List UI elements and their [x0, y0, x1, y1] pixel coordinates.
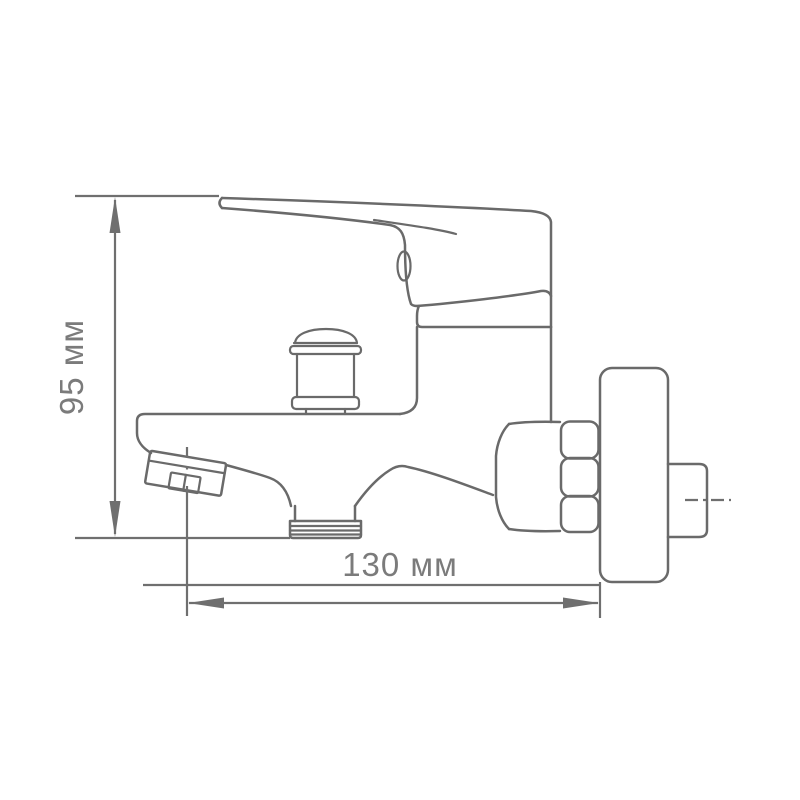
cap-outline	[417, 306, 551, 327]
hex-nut	[561, 422, 599, 533]
aerator-housing	[145, 451, 226, 496]
handle-bottom-seam	[417, 291, 551, 306]
height-dimension-label: 95 мм	[52, 247, 92, 487]
shower-hose-outlet	[290, 506, 361, 538]
aerator	[145, 451, 227, 497]
diverter-dome	[295, 329, 357, 343]
reach-dimension-label: 130 мм	[300, 547, 500, 583]
spout	[137, 414, 400, 506]
diverter-knob	[290, 329, 361, 414]
connection-nut	[496, 422, 560, 531]
handle-decorative-seam	[374, 220, 456, 234]
mixer-body	[355, 327, 551, 506]
outlet-thread-lines	[290, 526, 361, 535]
spout-underside	[226, 465, 291, 506]
height-dimension	[75, 196, 290, 538]
reach-arrow-left	[188, 598, 224, 609]
diverter-cylinder	[297, 354, 354, 397]
height-arrow-up	[110, 197, 121, 233]
reach-dimension	[143, 447, 600, 618]
aerator-outlet-divider	[183, 475, 186, 491]
nut-barrel-left	[496, 424, 509, 529]
nut-bottom-edge	[509, 529, 560, 531]
hex-facet-bottom	[561, 496, 599, 532]
height-arrow-down	[110, 501, 121, 537]
reach-arrow-right	[563, 598, 599, 609]
hex-facet-middle	[561, 458, 599, 497]
handle-top-edge	[222, 198, 551, 327]
cartridge-cap	[417, 306, 551, 327]
wall-mount	[600, 368, 731, 582]
body-underside-saddle	[355, 466, 493, 506]
diverter-bottom-flange	[292, 397, 359, 409]
handle-tip	[220, 198, 223, 208]
technical-drawing-canvas: 95 мм 130 мм	[0, 0, 800, 800]
lever-handle	[220, 198, 552, 327]
diverter-groove-ring	[290, 346, 361, 354]
hex-facet-top	[561, 422, 599, 459]
nut-top-edge	[509, 422, 560, 424]
faucet-drawing	[0, 0, 800, 800]
spout-top-and-left	[137, 414, 400, 453]
outlet-neck	[295, 506, 355, 521]
body-left-edge	[400, 327, 417, 414]
wall-escutcheon	[600, 368, 668, 582]
